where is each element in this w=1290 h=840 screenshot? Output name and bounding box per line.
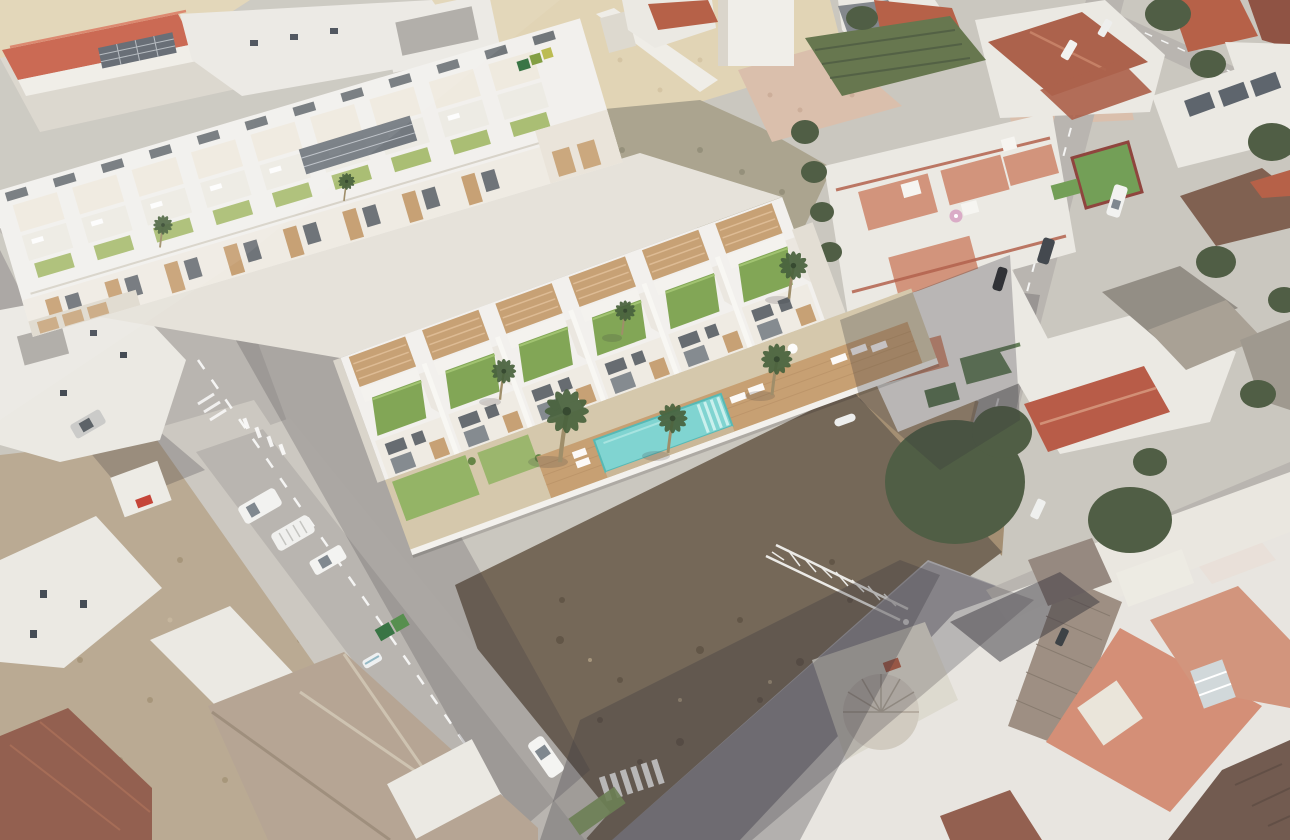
- atmospheric-haze: [0, 0, 1290, 840]
- aerial-scene: [0, 0, 1290, 840]
- aerial-photo: [0, 0, 1290, 840]
